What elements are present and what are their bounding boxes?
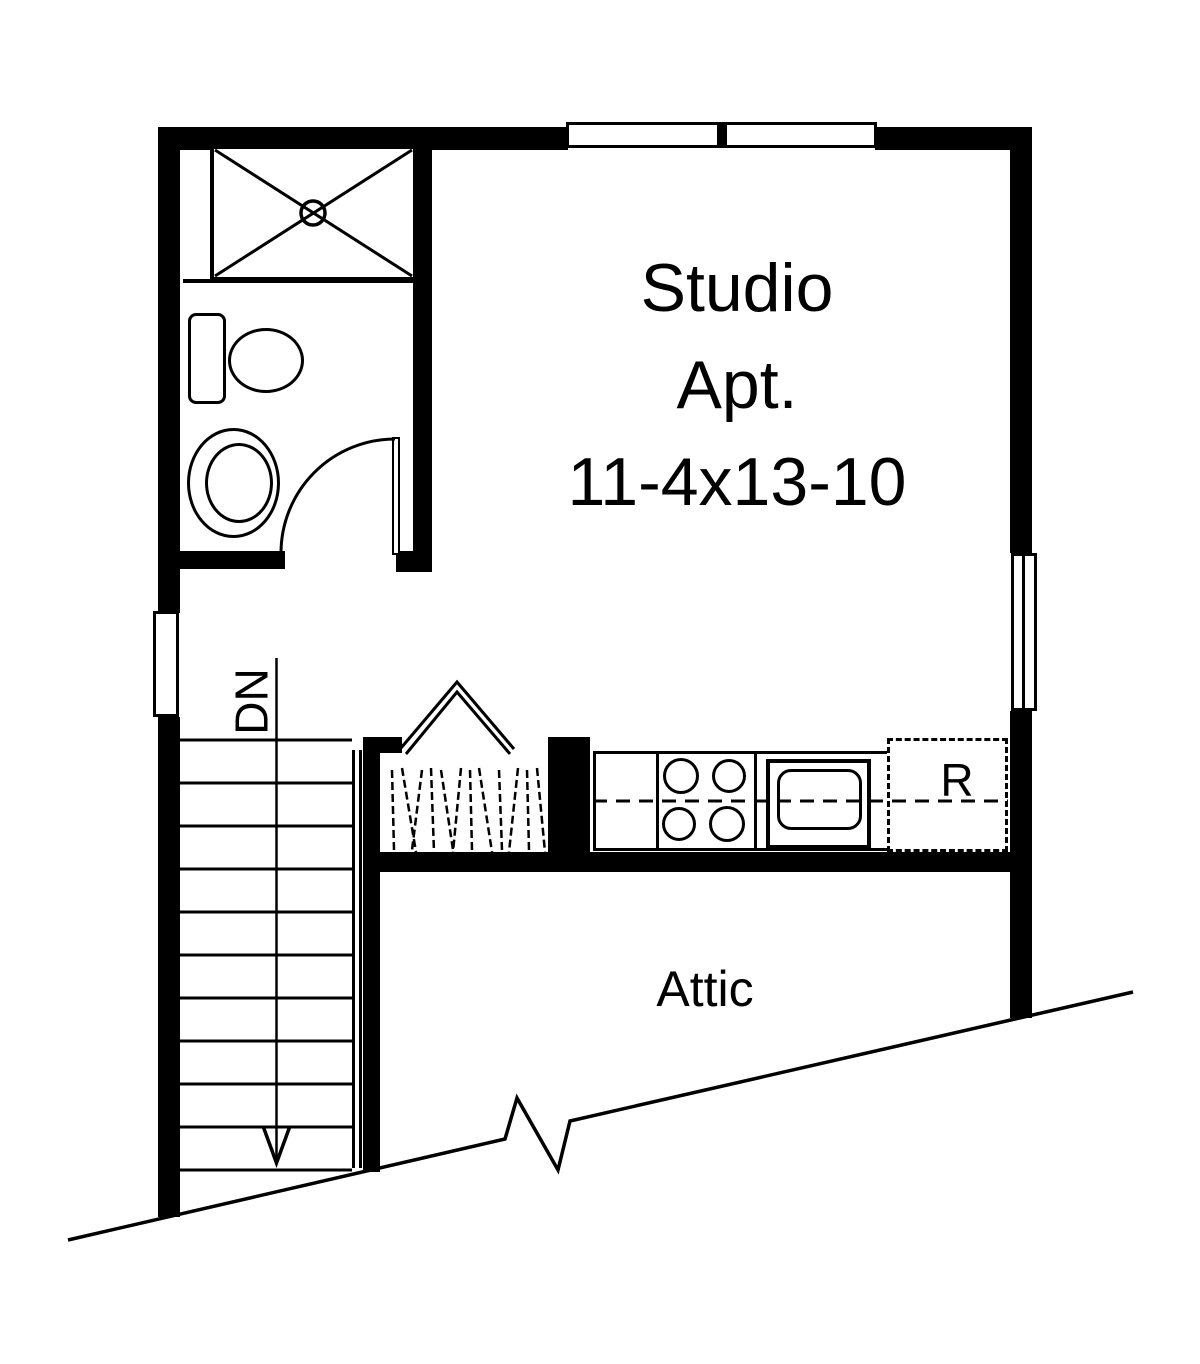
hanger-mark (402, 768, 416, 852)
stair-closet-wall (363, 737, 380, 1172)
shower (210, 145, 417, 281)
stove-burner (709, 806, 745, 842)
bathroom-door-leaf (392, 437, 400, 555)
room-dimensions: 11-4x13-10 (437, 434, 1037, 531)
hanger-mark (441, 770, 453, 850)
kitchen-sink-basin (777, 769, 862, 830)
stove-burner (663, 758, 699, 794)
hanger-mark (509, 768, 518, 852)
floor-plan: Studio Apt. 11-4x13-10 DN R Attic (0, 0, 1200, 1364)
hanger-mark (479, 768, 492, 852)
stair-treads (180, 740, 352, 1170)
closet-hanger-rod-marks (392, 768, 545, 852)
closet-bifold-door (401, 682, 514, 754)
right-wall-window (1011, 553, 1037, 711)
hanger-mark (499, 770, 502, 850)
hanger-mark (527, 770, 529, 850)
attic-label: Attic (600, 960, 810, 1018)
kitchen-attic-wall-bottom (363, 852, 1032, 872)
hanger-mark (431, 768, 434, 852)
right-window-mullion (1022, 556, 1025, 708)
closet-left-jamb (363, 737, 402, 753)
toilet-bowl (228, 328, 304, 393)
stove-burner (712, 759, 746, 793)
left-wall-window (153, 611, 179, 717)
exterior-wall-left-upper (158, 127, 180, 613)
bifold-inner-line (406, 692, 510, 754)
room-name-line1: Studio (437, 240, 1037, 337)
closet-right-wall (548, 737, 590, 855)
hanger-mark (412, 770, 422, 850)
hanger-mark (470, 770, 472, 850)
studio-room-label: Studio Apt. 11-4x13-10 (437, 240, 1037, 531)
stove-burner (662, 807, 696, 841)
hanger-mark (392, 770, 394, 850)
shower-base-line (183, 279, 417, 283)
bifold-outer-line (401, 682, 514, 749)
room-name-line2: Apt. (437, 337, 1037, 434)
toilet-tank (188, 313, 226, 404)
stair-handrail (352, 750, 362, 1168)
roof-slope-line (68, 992, 1133, 1240)
top-window (566, 122, 877, 148)
hanger-mark (537, 768, 545, 852)
arrow-head (263, 1126, 290, 1163)
bathroom-wall-bottom-right-stub (396, 551, 432, 572)
bathroom-door-swing-arc (281, 439, 395, 553)
exterior-wall-top-right (875, 127, 1032, 150)
hanger-mark (453, 768, 461, 852)
bathroom-wall-bottom-left (158, 551, 285, 569)
exterior-wall-left-lower (158, 717, 180, 1217)
dn-label: DN (229, 657, 274, 747)
refrigerator-label: R (897, 745, 1017, 815)
top-window-mullion (717, 125, 727, 145)
sink-basin (205, 443, 273, 523)
